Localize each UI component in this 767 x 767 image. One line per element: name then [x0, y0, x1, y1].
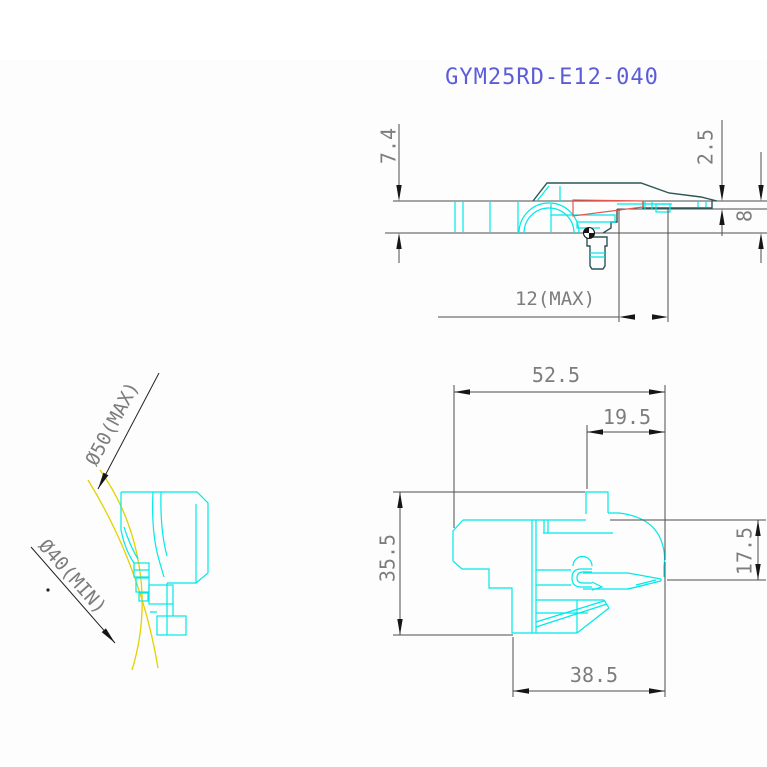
dimension-2-5: 2.5 [694, 120, 725, 236]
label-max-diameter: Ø50(MAX) [81, 378, 143, 469]
dim-label-52-5: 52.5 [532, 363, 580, 387]
dim-label-17-5: 17.5 [733, 527, 757, 575]
label-min-diameter: Ø40(MIN) [34, 535, 111, 618]
dimension-7-4: 7.4 [377, 124, 402, 263]
dimension-17-5: 17.5 [610, 520, 766, 580]
front-view: 52.5 19.5 35.5 [376, 363, 767, 697]
front-view-body [453, 492, 665, 633]
drawing-title: GYM25RD-E12-040 [445, 65, 659, 90]
dim-label-7-4: 7.4 [377, 128, 401, 164]
dim-label-2-5: 2.5 [694, 129, 718, 165]
cad-drawing-canvas: GYM25RD-E12-040 [0, 0, 767, 767]
dim-label-35-5: 35.5 [376, 534, 400, 582]
dimension-8: 8 [733, 152, 764, 263]
reference-point-dot [46, 588, 49, 591]
stylus-knob [573, 557, 592, 567]
technical-drawing: GYM25RD-E12-040 [0, 0, 767, 767]
left-view: Ø50(MAX) Ø40(MIN) [31, 373, 208, 670]
dimension-19-5: 19.5 [587, 405, 665, 489]
max-diameter-arc [88, 480, 158, 668]
dim-label-19-5: 19.5 [603, 405, 651, 429]
foot-lower-block [157, 616, 186, 635]
stylus-point-marker [584, 228, 595, 239]
dim-label-38-5: 38.5 [570, 663, 618, 687]
cantilever-red-part [573, 200, 643, 216]
left-view-body [121, 492, 208, 635]
dim-label-8: 8 [733, 210, 757, 222]
leader-min-diameter: Ø40(MIN) [31, 535, 115, 643]
side-view-datum-lines [385, 201, 767, 233]
dimension-12-max: 12(MAX) [438, 209, 668, 322]
foot-upper-block [149, 585, 173, 604]
dim-label-12-max: 12(MAX) [515, 288, 595, 310]
leader-max-diameter: Ø50(MAX) [81, 373, 159, 489]
dimension-52-5: 52.5 [454, 363, 665, 560]
top-tab [586, 492, 608, 514]
side-view: 7.4 2.5 8 12(MAX) [377, 120, 767, 322]
